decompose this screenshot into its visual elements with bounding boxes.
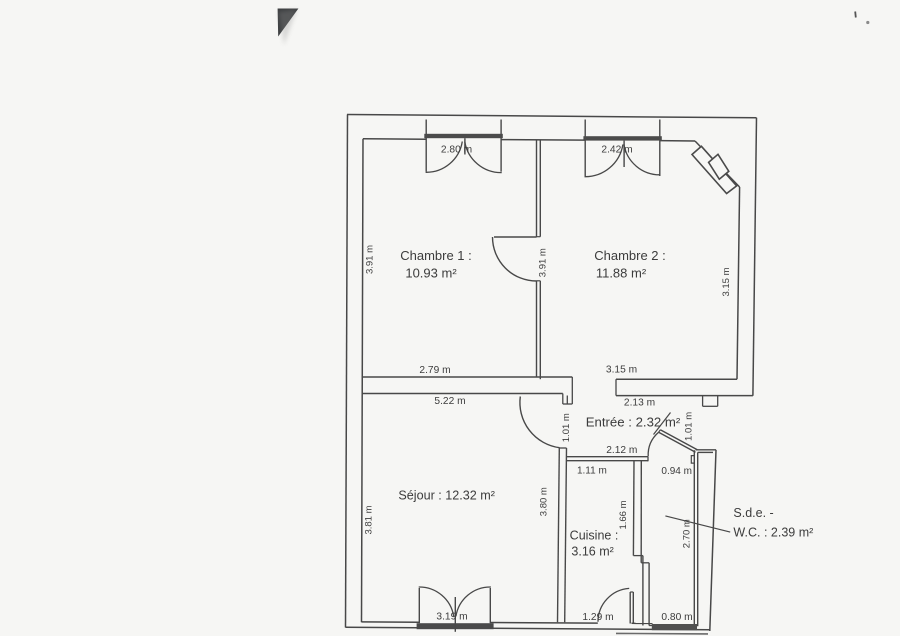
svg-text:5.22 m: 5.22 m [434, 396, 465, 407]
svg-text:2.12 m: 2.12 m [606, 445, 637, 456]
svg-text:1.29 m: 1.29 m [582, 612, 613, 623]
svg-text:1.11 m: 1.11 m [577, 465, 607, 476]
svg-text:3.81 m: 3.81 m [364, 505, 375, 534]
svg-text:3.19 m: 3.19 m [436, 612, 467, 623]
svg-text:2.13 m: 2.13 m [624, 398, 655, 409]
svg-text:0.80 m: 0.80 m [661, 612, 692, 623]
svg-text:1.01 m: 1.01 m [684, 412, 695, 441]
svg-text:Chambre 2 :: Chambre 2 : [594, 248, 666, 263]
svg-text:2.79 m: 2.79 m [419, 365, 450, 376]
svg-text:3.91 m: 3.91 m [538, 248, 549, 277]
svg-text:3.15 m: 3.15 m [721, 267, 732, 296]
svg-text:3.15 m: 3.15 m [606, 365, 637, 376]
svg-text:3.80 m: 3.80 m [539, 487, 550, 516]
svg-text:3.91 m: 3.91 m [365, 245, 376, 274]
svg-text:2.70 m: 2.70 m [682, 519, 693, 548]
svg-text:1.01 m: 1.01 m [561, 413, 572, 442]
svg-text:11.88 m²: 11.88 m² [596, 266, 647, 281]
svg-text:S.d.e. -: S.d.e. - [733, 506, 773, 520]
svg-text:2.80 m: 2.80 m [441, 145, 472, 156]
svg-text:Cuisine :: Cuisine : [570, 529, 619, 543]
svg-text:3.16 m²: 3.16 m² [571, 545, 613, 559]
svg-text:W.C. : 2.39 m²: W.C. : 2.39 m² [733, 526, 813, 540]
svg-text:Séjour : 12.32 m²: Séjour : 12.32 m² [398, 489, 495, 503]
svg-text:Entrée : 2.32 m²: Entrée : 2.32 m² [586, 415, 681, 430]
svg-text:10.93 m²: 10.93 m² [405, 266, 457, 281]
svg-text:Chambre 1 :: Chambre 1 : [400, 248, 472, 263]
svg-text:0.94 m: 0.94 m [661, 466, 692, 477]
svg-text:2.42 m: 2.42 m [601, 145, 632, 156]
svg-text:1.66 m: 1.66 m [618, 500, 629, 529]
